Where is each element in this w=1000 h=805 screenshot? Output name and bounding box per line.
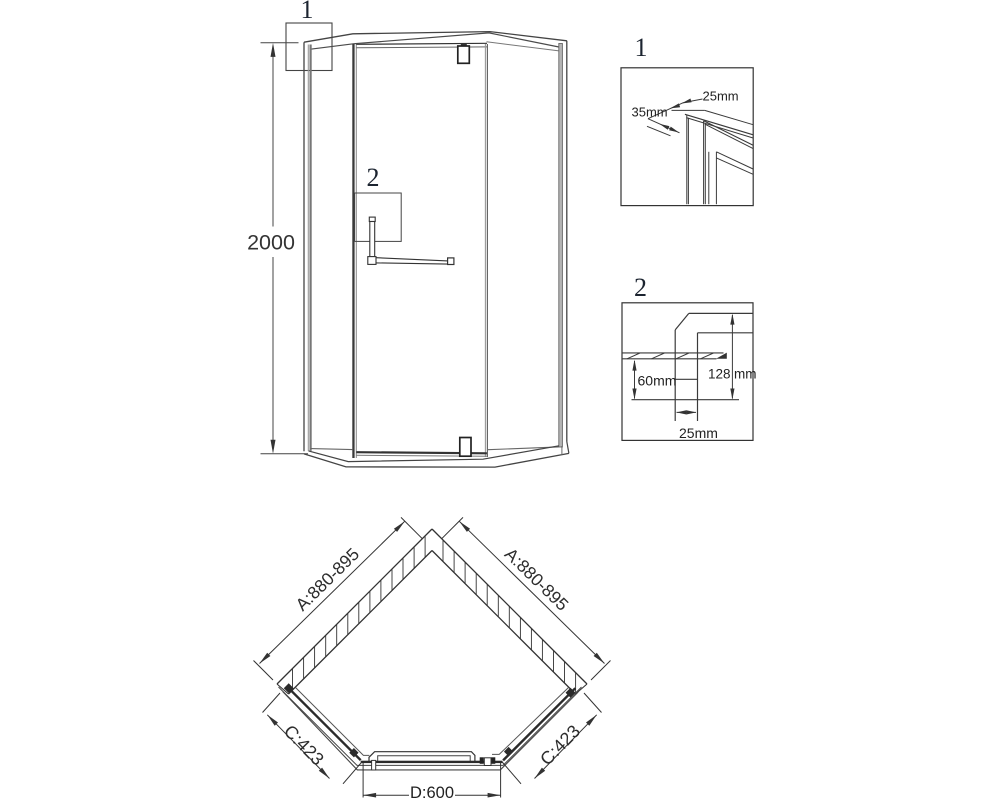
svg-text:2: 2	[634, 273, 647, 302]
svg-text:1: 1	[635, 33, 648, 62]
svg-text:2000: 2000	[247, 231, 295, 255]
svg-text:35mm: 35mm	[632, 105, 668, 120]
svg-text:60mm: 60mm	[638, 373, 677, 389]
svg-text:D:600: D:600	[410, 784, 454, 800]
svg-text:128: 128	[708, 367, 731, 382]
svg-text:2: 2	[367, 163, 380, 192]
svg-text:1: 1	[301, 0, 314, 24]
svg-text:25mm: 25mm	[679, 425, 718, 441]
svg-text:mm: mm	[734, 367, 757, 382]
svg-text:25mm: 25mm	[703, 89, 739, 104]
